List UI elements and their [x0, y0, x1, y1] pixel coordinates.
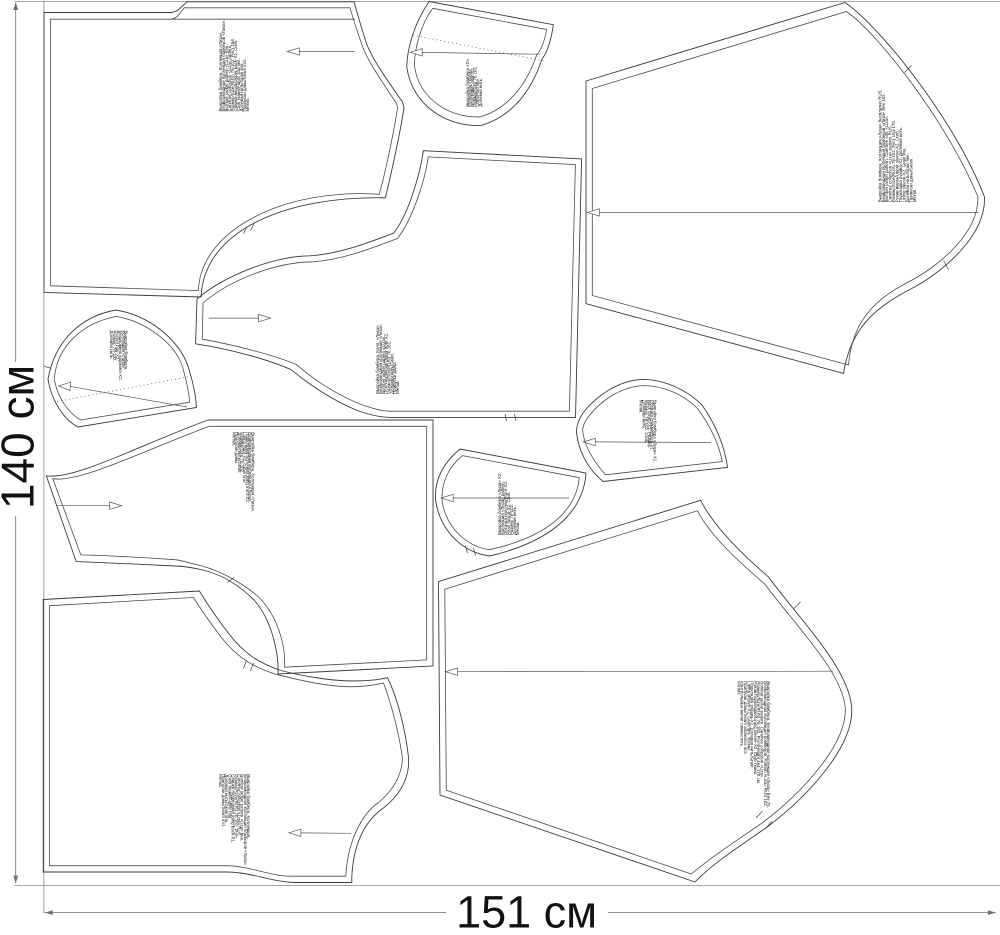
svg-text:Метки.: Метки. — [245, 98, 250, 112]
svg-text:Метки.: Метки. — [395, 380, 400, 394]
svg-text:Долевая нить.: Долевая нить. — [109, 331, 114, 360]
svg-text:Метки.: Метки. — [218, 774, 223, 788]
svg-text:Метки.: Метки. — [912, 189, 917, 203]
svg-text:Метки.: Метки. — [515, 521, 520, 535]
svg-text:Метки.: Метки. — [736, 681, 741, 695]
svg-text:Долевая нить.: Долевая нить. — [478, 78, 483, 107]
svg-text:Метки.: Метки. — [231, 432, 236, 446]
svg-text:151 см: 151 см — [456, 887, 597, 931]
svg-text:140 см: 140 см — [0, 365, 44, 509]
svg-text:Метки.: Метки. — [639, 400, 644, 414]
